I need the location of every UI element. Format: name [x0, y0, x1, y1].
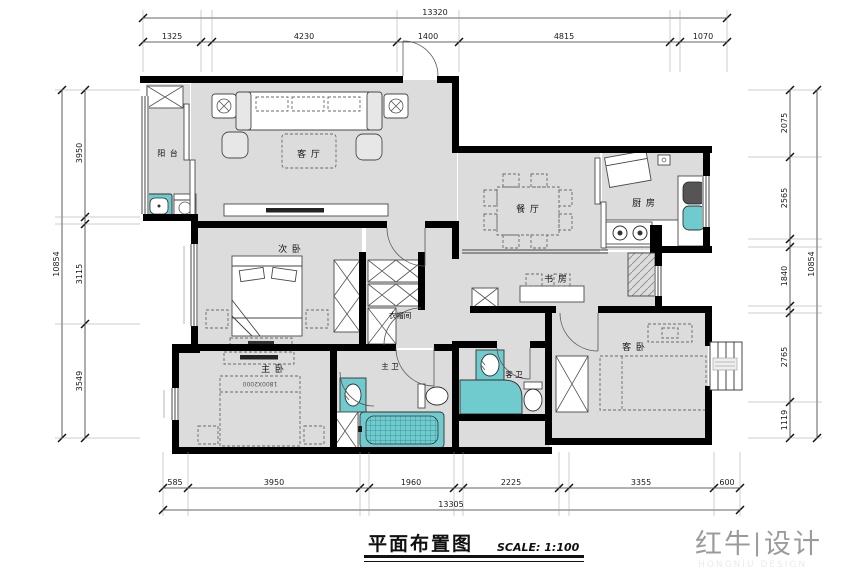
sofa-armrest-right: [367, 92, 382, 130]
dim-right-total: 10854: [807, 251, 816, 276]
dim-left-seg: 3549: [75, 371, 84, 391]
dim-top-seg: 1325: [162, 32, 182, 41]
room-label-guest-bath: 客 卫: [505, 369, 523, 379]
tv-icon-master: [240, 355, 278, 360]
room-label-living: 客 厅: [297, 148, 321, 160]
bed-second-bedroom: [232, 256, 302, 336]
dim-top-seg: 4230: [294, 32, 314, 41]
shower-guest: [460, 380, 522, 414]
window-tag: [713, 358, 737, 370]
closet-cabinet: [368, 260, 424, 282]
logo-subtitle: HONGNIU DESIGN: [698, 560, 807, 570]
floor-plan-canvas: 1800X2000: [0, 0, 860, 580]
dim-right-seg: 1840: [780, 266, 789, 286]
sink-basin-icon: [481, 354, 499, 376]
room-label-closet: 衣帽间: [389, 310, 412, 320]
logo: 红牛 | 设计 HONGNIU DESIGN: [695, 529, 822, 570]
dim-bottom-seg: 600: [719, 478, 734, 487]
dim-right-seg: 1119: [780, 410, 789, 430]
room-label-master-bedroom: 主 卧: [261, 363, 285, 375]
dim-left-seg: 3950: [75, 143, 84, 163]
drawing-scale: SCALE: 1:100: [497, 541, 580, 554]
logo-brand-left: 红牛: [695, 529, 753, 560]
toilet-guest: [524, 389, 542, 411]
dim-top-total: 13320: [422, 8, 447, 17]
toilet-master: [426, 387, 448, 405]
bathtub-inner: [366, 416, 438, 444]
room-label-master-bath: 主 卫: [381, 361, 399, 371]
dim-bottom-total: 13305: [438, 500, 463, 509]
sofa-armrest-left: [236, 92, 251, 130]
room-label-second-bedroom: 次 卧: [278, 243, 302, 255]
room-label-guest-bedroom: 客 卧: [622, 341, 646, 353]
room-label-dining: 餐 厅: [516, 203, 540, 215]
dim-bottom-seg: 585: [167, 478, 182, 487]
floor-plan-svg: 1800X2000: [0, 0, 860, 580]
room-label-kitchen: 厨 房: [632, 197, 656, 209]
drawing-title: 平面布置图: [368, 532, 473, 555]
kitchen-drainboard: [683, 182, 705, 204]
dim-bottom-seg: 3355: [631, 478, 651, 487]
kitchen-vent-box: [658, 155, 670, 165]
dim-right-seg: 2075: [780, 113, 789, 133]
entry-door-arc: [403, 41, 438, 76]
title-block: 平面布置图 SCALE: 1:100: [364, 532, 584, 562]
floor-master-bedroom: [176, 350, 334, 450]
toilet-tank-guest: [524, 382, 542, 389]
room-label-study: 书 房: [544, 273, 568, 285]
dim-top-seg: 1070: [693, 32, 713, 41]
bed-size-label: 1800X2000: [242, 380, 277, 387]
dim-bottom-seg: 3950: [264, 478, 284, 487]
balcony-sink-drain-icon: [158, 205, 161, 208]
dim-top-seg: 1400: [418, 32, 438, 41]
shaft-hatch: [628, 253, 655, 296]
armchair-right: [356, 134, 382, 160]
armchair-left: [222, 132, 248, 158]
dim-top-seg: 4815: [554, 32, 574, 41]
closet-cabinet: [368, 284, 424, 306]
dim-right-seg: 2765: [780, 347, 789, 367]
kitchen-slider-panel-1: [595, 158, 600, 204]
logo-divider: |: [753, 529, 763, 557]
dim-bottom-seg: 2225: [501, 478, 521, 487]
toilet-tank-master: [418, 384, 425, 408]
dim-left-total: 10854: [52, 251, 61, 276]
tv-icon: [266, 208, 324, 213]
title-underline-thick: [364, 555, 584, 558]
dim-left-seg: 3115: [75, 264, 84, 284]
room-label-balcony: 阳 台: [157, 148, 179, 158]
desk-study: [520, 286, 584, 302]
title-underline-thin: [364, 561, 584, 562]
wardrobe-second-bedroom: [334, 260, 360, 332]
balcony-slider-panel-1: [184, 104, 189, 160]
balcony-slider-panel-2: [190, 160, 195, 216]
kitchen-slider-panel-2: [601, 202, 606, 248]
burner-icon: [618, 231, 623, 236]
burner-icon: [638, 231, 643, 236]
kitchen-sink: [683, 206, 705, 230]
logo-brand-right: 设计: [764, 529, 822, 560]
dim-right-seg: 2565: [780, 188, 789, 208]
dim-bottom-seg: 1960: [401, 478, 421, 487]
